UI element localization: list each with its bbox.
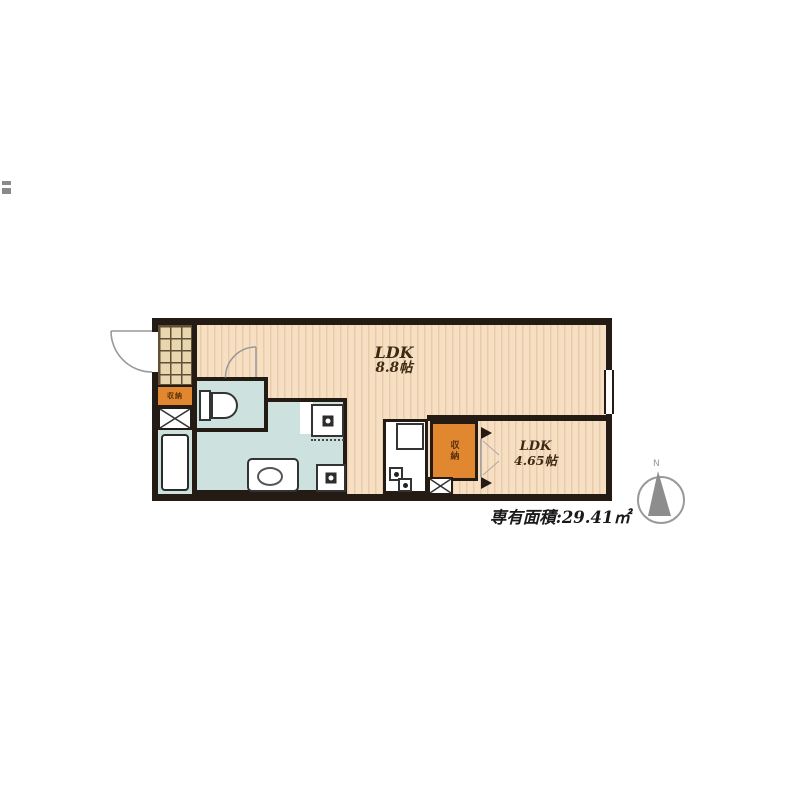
wall [192, 325, 197, 494]
appliance-icon [316, 464, 346, 492]
floor-plan-canvas: 収納 収納 LDK 8.8帖 LDK 4.65帖 専有 [0, 0, 800, 800]
partition-wall [427, 415, 606, 421]
edge-artifact [2, 181, 11, 194]
ldk-room-label: LDK 8.8帖 [344, 344, 444, 376]
appliance-dotted-line [311, 439, 344, 441]
bathtub-icon [161, 434, 189, 491]
window [604, 370, 614, 414]
wall [152, 494, 612, 501]
toilet-tank-icon [199, 390, 211, 421]
appliance-drum-icon [326, 473, 337, 484]
entrance-door-arc-icon [111, 331, 152, 372]
washing-machine-icon [311, 404, 344, 437]
second-room-size: 4.65帖 [488, 454, 583, 468]
entry-storage-label: 収納 [167, 391, 183, 401]
closet-label: 収納 [448, 440, 461, 462]
entrance-tile-floor [158, 325, 192, 385]
washing-machine-drum-icon [322, 415, 333, 426]
washbasin-bowl-icon [257, 467, 283, 486]
ldk-name: LDK [344, 344, 444, 361]
refrigerator-space-box [428, 477, 453, 495]
compass-icon: N [638, 459, 684, 523]
wall [606, 318, 612, 372]
second-room-label: LDK 4.65帖 [488, 440, 583, 468]
wall [152, 318, 612, 325]
wall [152, 372, 158, 501]
exclusive-area-text: 専有面積:29.41㎡ [420, 504, 630, 528]
entry-storage-cabinet: 収納 [158, 385, 192, 407]
closet: 収納 [430, 421, 478, 481]
ldk-size: 8.8帖 [344, 361, 444, 376]
second-room-name: LDK [488, 440, 583, 454]
washbasin-icon [247, 458, 299, 492]
kitchen-sink-icon [396, 423, 424, 450]
stove-burner-icon [398, 478, 412, 492]
toilet-bowl-icon [211, 392, 238, 419]
wall [152, 318, 158, 332]
compass-north-label: N [653, 459, 660, 469]
washer-space-box [158, 407, 192, 430]
wall [606, 412, 612, 501]
